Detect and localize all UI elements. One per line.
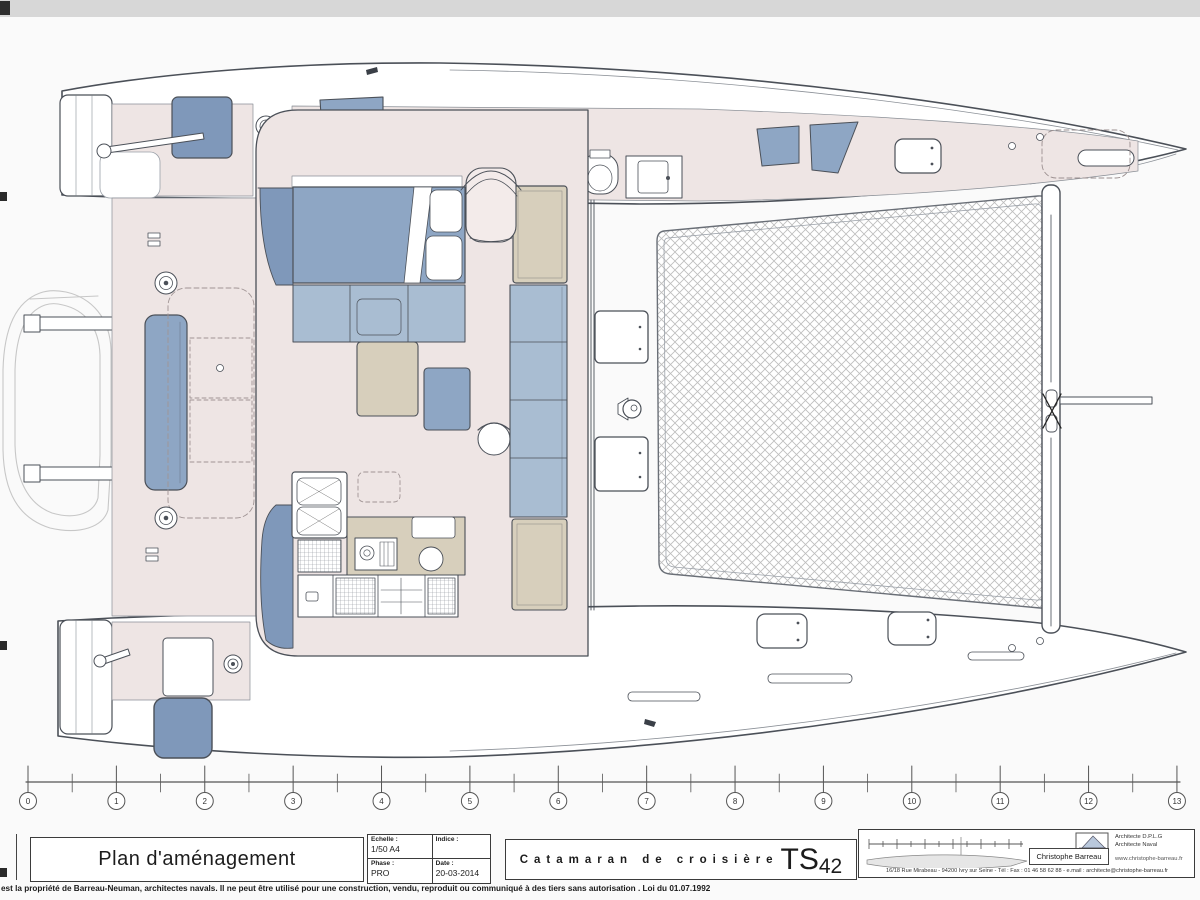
port-transom: [60, 620, 112, 734]
stove: [355, 538, 397, 570]
svg-text:2: 2: [203, 797, 208, 806]
swivel-chair: [478, 423, 510, 455]
svg-text:6: 6: [556, 797, 561, 806]
svg-text:7: 7: [644, 797, 649, 806]
transom-locker: [172, 97, 232, 158]
boat-title-box: Catamaran de croisière TS 42: [505, 839, 857, 880]
winch: [155, 507, 177, 529]
svg-text:13: 13: [1172, 797, 1181, 806]
field-date: Date : 20-03-2014: [433, 859, 490, 883]
cockpit-bench: [145, 315, 187, 490]
svg-text:1: 1: [114, 797, 119, 806]
architect-titles: Architecte D.P.L.G Architecte Naval: [1115, 834, 1162, 849]
trampoline: [657, 196, 1051, 608]
cockpit: [112, 198, 256, 616]
architect-box: Christophe Barreau Architecte D.P.L.G Ar…: [858, 829, 1195, 878]
round-sink: [419, 547, 443, 571]
port-hull: [58, 606, 1186, 758]
saloon: [256, 110, 588, 656]
architect-address: 16/18 Rue Mirabeau - 94200 Ivry sur Sein…: [863, 868, 1191, 874]
shower-tray: [626, 156, 682, 198]
saloon-sofa: [293, 285, 465, 342]
saloon-berth: [293, 187, 465, 283]
winch: [224, 655, 242, 673]
cutting-board: [412, 517, 455, 538]
drawing-title: Plan d'aménagement: [98, 848, 295, 871]
boat-title: Catamaran de croisière: [520, 854, 779, 866]
galley-cabinets: [510, 285, 567, 610]
saloon-table: [357, 342, 418, 416]
toe-rail: [768, 674, 852, 683]
chart-table: [513, 186, 567, 283]
scale-ruler: 012345678910111213: [20, 766, 1186, 810]
galley-drainer: [298, 540, 341, 572]
deck-hatch: [888, 612, 936, 645]
architect-name: Christophe Barreau: [1029, 848, 1109, 865]
sheet-frame-edge: [16, 834, 17, 880]
field-echelle: Echelle : 1/50 A4: [368, 835, 433, 859]
foredeck-hatch: [595, 311, 648, 363]
berth-headboard: [292, 176, 462, 187]
drawing-sheet: 012345678910111213 Plan d'aménagement Ec…: [0, 0, 1200, 900]
svg-text:0: 0: [26, 797, 31, 806]
starboard-hull: [60, 63, 1186, 204]
trampoline-net: [657, 196, 1051, 608]
drawing-title-box: Plan d'aménagement: [30, 837, 364, 882]
svg-text:11: 11: [996, 797, 1005, 806]
svg-text:3: 3: [291, 797, 296, 806]
hull-window: [757, 126, 799, 166]
boat-model-number: 42: [819, 856, 842, 877]
mast-step: [618, 398, 641, 420]
galley-lower-units: [298, 575, 458, 617]
side-seat: [261, 505, 293, 648]
svg-text:4: 4: [379, 797, 384, 806]
winch: [155, 272, 177, 294]
galley-sink: [292, 472, 347, 538]
bow-handrail-slot: [1078, 150, 1134, 166]
svg-text:10: 10: [907, 797, 916, 806]
saloon-stool: [424, 368, 470, 430]
toe-rail: [968, 652, 1024, 660]
svg-text:12: 12: [1084, 797, 1093, 806]
svg-text:5: 5: [468, 797, 473, 806]
field-phase: Phase : PRO: [368, 859, 433, 883]
forward-beam: [1042, 185, 1152, 633]
foredeck-hatch: [595, 437, 648, 491]
boat-model-prefix: TS: [781, 845, 819, 875]
main-beam: [591, 200, 594, 610]
toe-rail: [628, 692, 700, 701]
architect-website: www.christophe-barreau.fr: [1115, 856, 1183, 862]
copyright-line: est la propriété de Barreau-Neuman, arch…: [1, 884, 710, 893]
companionway-door: [163, 638, 213, 696]
svg-text:9: 9: [821, 797, 826, 806]
deck-hatch: [757, 614, 807, 648]
swim-step: [154, 698, 212, 758]
svg-text:8: 8: [733, 797, 738, 806]
bowsprit: [1060, 397, 1152, 404]
deck-hatch: [895, 139, 941, 173]
field-indice: Indice :: [433, 835, 490, 859]
catamaran-plan-drawing: 012345678910111213: [0, 0, 1200, 900]
title-block-fields: Echelle : 1/50 A4 Indice : Phase : PRO D…: [367, 834, 491, 884]
foredeck: [591, 200, 648, 610]
helm-seat: [461, 168, 521, 242]
